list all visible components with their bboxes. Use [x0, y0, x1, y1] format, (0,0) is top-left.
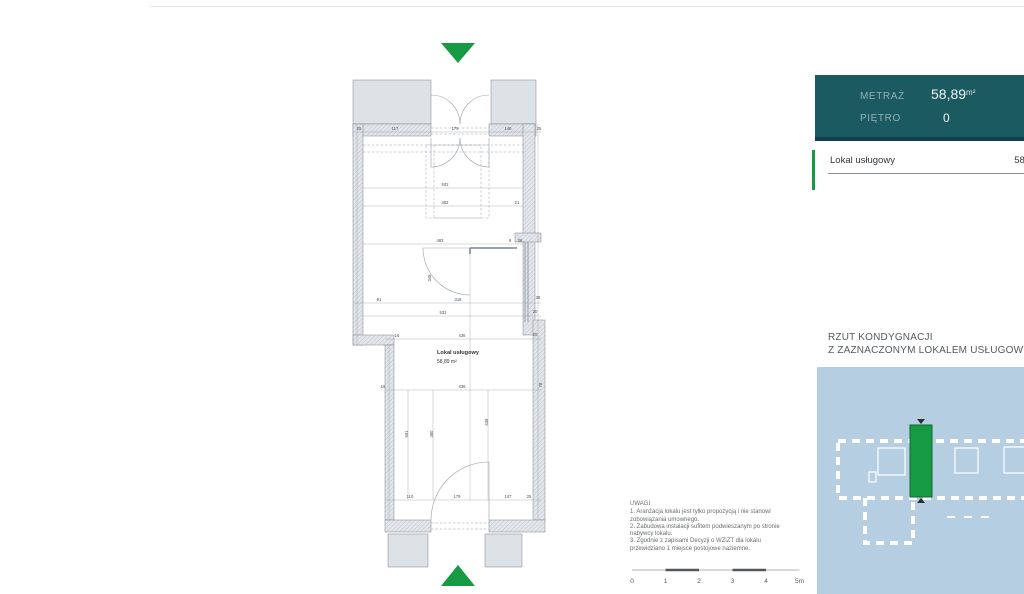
- scale-bar-labels: 012345m: [630, 578, 804, 585]
- dimension-label: 436: [459, 333, 467, 338]
- entrance-door-arc-outer-left: [431, 95, 460, 124]
- notes-lines: 1. Aranżacja lokalu jest tylko propozycj…: [630, 509, 815, 553]
- notes-line: zobowiązania umownego.: [630, 517, 815, 524]
- dimension-label: 25: [527, 494, 532, 499]
- dimension-label: 179: [452, 126, 460, 131]
- notes-heading: UWAGI: [630, 501, 815, 508]
- dimension-label: 502: [442, 182, 450, 187]
- scale-bar-label: 3: [731, 578, 735, 585]
- scale-bar-label: 4: [764, 578, 768, 585]
- notes-line: 2. Zabudowa instalacji sufitem podwiesza…: [630, 524, 815, 531]
- dimension-label: 36: [518, 238, 523, 243]
- scale-bar-label: 1: [664, 578, 668, 585]
- left-wall-lower: [385, 345, 394, 520]
- terrace-block-top-right: [491, 80, 536, 124]
- dimension-label: 483: [437, 238, 445, 243]
- scale-bar-label: 0: [630, 578, 634, 585]
- bottom-wall-right: [489, 520, 545, 532]
- dimension-label: 117: [392, 126, 399, 131]
- dimension-label: 16: [381, 384, 386, 389]
- dimension-label: 38: [536, 295, 541, 300]
- entrance-door-arc-inner-left: [431, 138, 460, 167]
- building-location-map: [817, 367, 1024, 594]
- dimension-labels: 2511717914625502302214838363489131838531…: [357, 126, 543, 499]
- info-panel: METRAŻ 58,89m² PIĘTRO 0: [815, 75, 1024, 141]
- left-wall-jog: [353, 335, 394, 345]
- notes-line: 3. Zgodnie z zapisami Decyzji o WZiZT dl…: [630, 538, 815, 545]
- dimension-label: 179: [454, 494, 462, 499]
- notes-line: nabywcy lokalu.: [630, 531, 815, 538]
- right-wall-lower: [533, 320, 545, 520]
- entrance-arrow-top: [441, 43, 475, 63]
- dimension-label: 8: [509, 238, 512, 243]
- unit-row: Lokal usługowy 58,89: [828, 152, 1024, 174]
- terrace-block-top-left: [353, 80, 431, 124]
- notes-line: przewidziano 1 miejsce postojowe naziemn…: [630, 546, 815, 553]
- left-wall-upper: [353, 124, 363, 345]
- page-top-divider: [150, 6, 1024, 7]
- interior-door-arc: [423, 248, 470, 295]
- dimension-label: 91: [377, 297, 382, 302]
- dimension-label: 25: [537, 126, 542, 131]
- unit-row-label: Lokal usługowy: [830, 155, 895, 166]
- section-title: RZUT KONDYGNACJI Z ZAZNACZONYM LOKALEM U…: [828, 332, 1024, 357]
- dimension-label: 638: [484, 418, 489, 426]
- dimension-label: 21: [515, 200, 520, 205]
- entrance-door-arc-inner-right: [460, 138, 489, 167]
- unit-row-accent-bar: [812, 150, 815, 190]
- metraz-value: 58,89m²: [931, 86, 975, 102]
- scale-bar-label: 2: [697, 578, 701, 585]
- dimension-label: 531: [440, 310, 448, 315]
- dimension-label: 78: [538, 382, 543, 387]
- notes-block: UWAGI 1. Aranżacja lokalu jest tylko pro…: [630, 501, 815, 553]
- dimension-label: 302: [442, 200, 450, 205]
- dimension-label: 20: [533, 332, 538, 337]
- bottom-wall-left: [385, 520, 431, 532]
- room-label: Lokal usługowy: [437, 350, 480, 356]
- exterior-walls: [353, 80, 545, 567]
- floor-plan-sheet: 2511717914625502302214838363489131838531…: [0, 0, 1024, 594]
- section-title-line1: RZUT KONDYGNACJI: [828, 332, 1024, 345]
- dimension-label: 436: [459, 384, 467, 389]
- scale-bar-label: 5m: [795, 578, 804, 585]
- dimension-label: 591: [404, 430, 409, 438]
- room-area: 58,89 m²: [437, 359, 457, 365]
- entrance-door-arc-outer-right: [460, 95, 489, 124]
- dimension-label: 147: [505, 494, 513, 499]
- terrace-block-bottom-left: [388, 534, 428, 567]
- dimension-label: 25: [357, 126, 362, 131]
- bottom-door-arc: [431, 462, 489, 520]
- floor-plan-drawing: 2511717914625502302214838363489131838531…: [345, 30, 560, 594]
- dimension-label: 318: [455, 297, 463, 302]
- metraz-unit: m²: [966, 88, 975, 97]
- interior-walls: [470, 248, 517, 254]
- pietro-value: 0: [943, 111, 950, 125]
- notes-line: 1. Aranżacja lokalu jest tylko propozycj…: [630, 509, 815, 516]
- unit-row-value: 58,89: [1014, 155, 1024, 166]
- scale-bar: 012345m: [628, 556, 808, 588]
- dimension-label: 110: [407, 494, 414, 499]
- dimension-label: 16: [395, 333, 400, 338]
- dimension-label: 146: [505, 126, 513, 131]
- terrace-block-bottom-right: [485, 534, 522, 567]
- section-title-line2: Z ZAZNACZONYM LOKALEM USŁUGOWYM: [828, 345, 1024, 358]
- pietro-label: PIĘTRO: [860, 113, 901, 124]
- dimension-label: 20: [533, 309, 538, 314]
- metraz-number: 58,89: [931, 86, 966, 102]
- dimension-label: 348: [427, 274, 432, 282]
- highlighted-unit: [910, 425, 932, 497]
- metraz-label: METRAŻ: [860, 91, 905, 102]
- entrance-arrow-bottom: [441, 565, 475, 586]
- dimension-label: 380: [429, 430, 434, 438]
